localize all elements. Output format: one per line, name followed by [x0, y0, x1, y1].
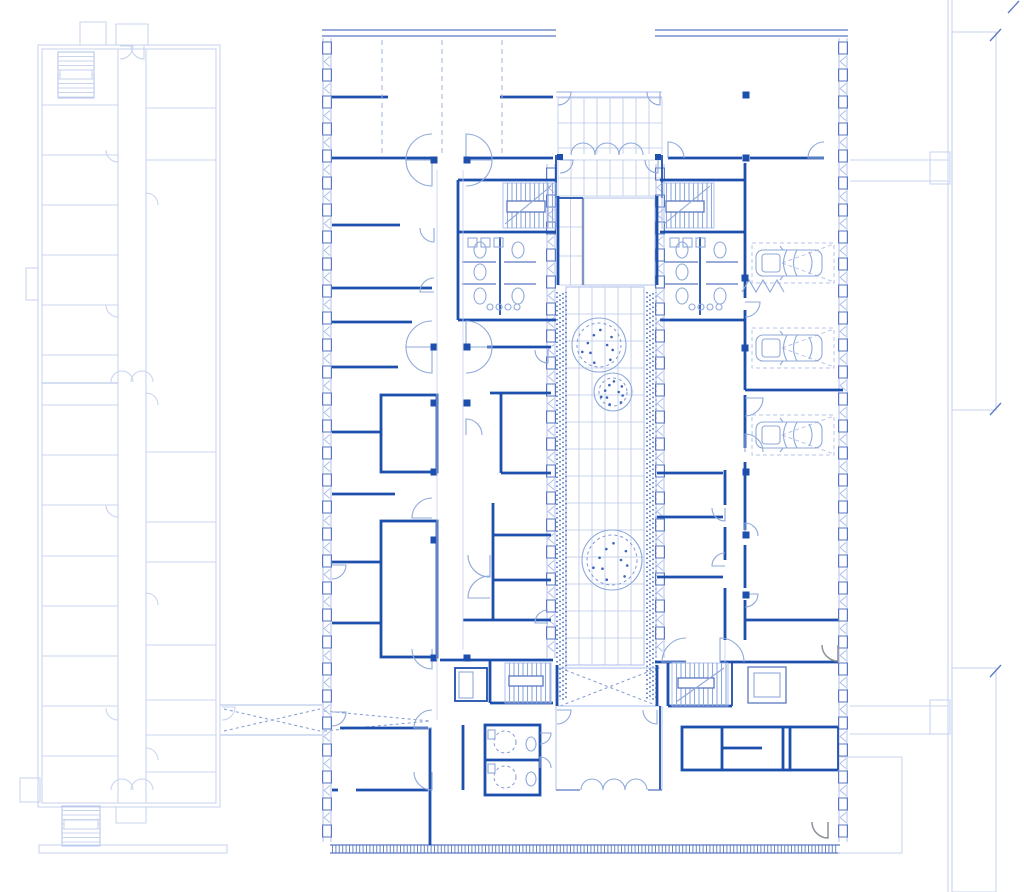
layer-ghost-left-building [20, 22, 227, 853]
layer-exterior-walls [322, 30, 902, 853]
layer-ghost-right-structures [930, 0, 1019, 892]
floor-plan-svg [0, 0, 1024, 892]
layer-courtyard-landscape [556, 98, 662, 790]
blueprint-page [0, 0, 1024, 892]
layer-details [382, 40, 725, 720]
layer-interior-bold-walls [332, 97, 843, 845]
layer-parking [742, 243, 834, 455]
